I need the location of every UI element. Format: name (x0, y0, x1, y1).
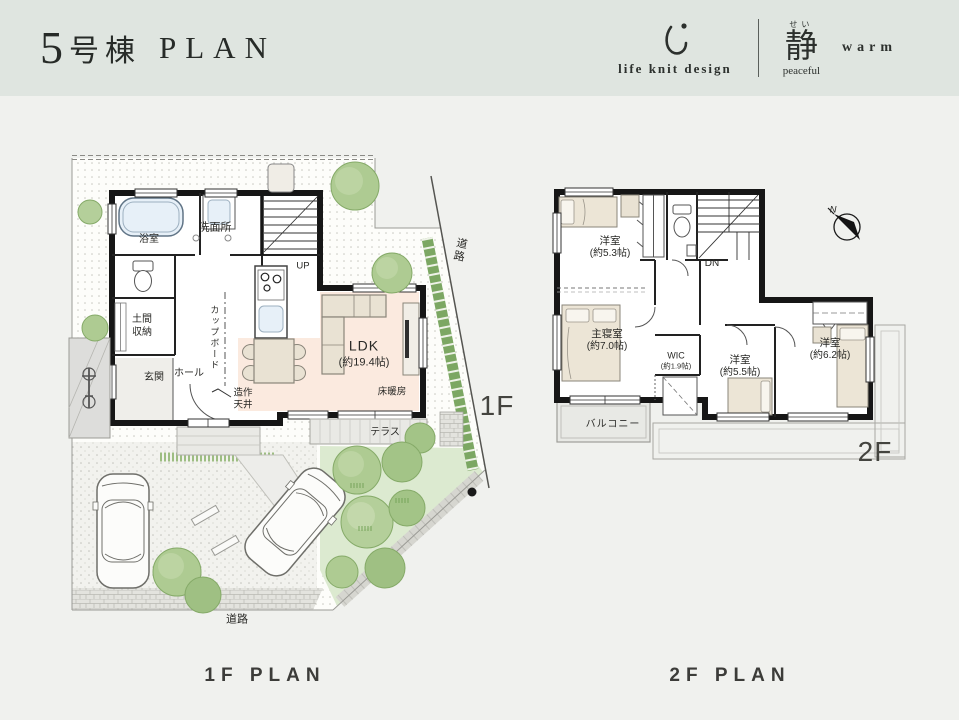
label-floor-heating: 床暖房 (378, 386, 407, 397)
bed-bedroom-b (728, 378, 772, 415)
bedroom-c-name: 洋室 (810, 337, 851, 350)
kitchen-island (255, 266, 287, 338)
water-heater (268, 164, 294, 192)
manhole (468, 488, 477, 497)
wic-name: WIC (661, 351, 691, 362)
floor1-plan-drawing (55, 140, 500, 640)
label-ldk: LDK (349, 338, 379, 355)
label-cupboard: カップボード (209, 305, 220, 371)
bedroom-a-size: (約5.3帖) (590, 248, 631, 261)
brand-keyword: warm (842, 40, 897, 56)
floor2-caption: 2F PLAN (669, 665, 790, 687)
desk-bedroom-a (621, 195, 639, 217)
bedroom-c-size: (約6.2帖) (810, 350, 851, 363)
wic-size: (約1.9帖) (661, 362, 691, 371)
label-master-bedroom: 主寝室 (約7.0帖) (587, 328, 628, 354)
brand-block: life knit design せい 静 peaceful warm (618, 0, 959, 96)
bedroom-b-size: (約5.5帖) (720, 367, 761, 380)
bedroom-a-name: 洋室 (590, 235, 631, 248)
brand-divider (758, 19, 759, 77)
floor1-badge: 1F (480, 390, 515, 422)
label-wic: WIC (約1.9帖) (661, 351, 691, 372)
label-ldk-size: (約19.4帖) (339, 356, 390, 369)
label-hall: ホール (174, 368, 204, 380)
label-terrace: テラス (370, 427, 400, 439)
car-1 (93, 474, 153, 588)
floorplan-page: { "header": { "title_number": "5", "titl… (0, 0, 959, 720)
page-title: 5 号棟 PLAN (40, 0, 276, 96)
retaining-block (440, 412, 463, 446)
label-washroom: 洗面所 (199, 221, 232, 234)
label-bedroom-c: 洋室 (約6.2帖) (810, 337, 851, 363)
label-entrance: 玄関 (144, 372, 164, 384)
floor1-caption: 1F PLAN (204, 665, 325, 687)
unit-suffix: 号棟 (69, 26, 141, 70)
floor2-badge: 2F (858, 436, 893, 468)
concept-kanji: 静 (785, 30, 818, 65)
bicycle-bay (69, 338, 110, 438)
closet-55 (663, 377, 697, 415)
label-road-front: 道路 (226, 613, 248, 626)
site-step-boundary (375, 158, 440, 228)
label-stairs-dn: DN (705, 258, 719, 270)
entrance-porch (177, 427, 260, 455)
label-bedroom-b: 洋室 (約5.5帖) (720, 354, 761, 380)
brand-concept: せい 静 peaceful (783, 19, 820, 78)
header-band: 5 号棟 PLAN life knit design せい 静 peaceful… (0, 0, 959, 96)
master-bedroom-size: (約7.0帖) (587, 341, 628, 354)
label-doma-storage: 土間収納 (131, 313, 153, 339)
label-compass-north: N (830, 204, 837, 215)
doma-shelf (115, 303, 126, 351)
brand-logo: life knit design (618, 19, 732, 77)
label-stairs-up: UP (296, 260, 309, 271)
bedroom-b-name: 洋室 (720, 354, 761, 367)
bed-bedroom-a (559, 197, 617, 227)
concept-reading: peaceful (783, 65, 820, 77)
master-bedroom-name: 主寝室 (587, 328, 628, 341)
brand-name: life knit design (618, 61, 732, 77)
bathtub (119, 198, 183, 236)
life-knit-logo-icon (658, 19, 692, 59)
title-plan-word: PLAN (159, 30, 276, 66)
tv-board (403, 303, 419, 375)
label-balcony: バルコニー (586, 419, 641, 431)
label-bedroom-a: 洋室 (約5.3帖) (590, 235, 631, 261)
label-bath: 浴室 (139, 234, 159, 246)
unit-number: 5 (40, 25, 63, 71)
genkan-floor (115, 358, 173, 420)
label-custom-ceiling: 造作天井 (233, 388, 254, 413)
toilet-1f (133, 261, 153, 292)
